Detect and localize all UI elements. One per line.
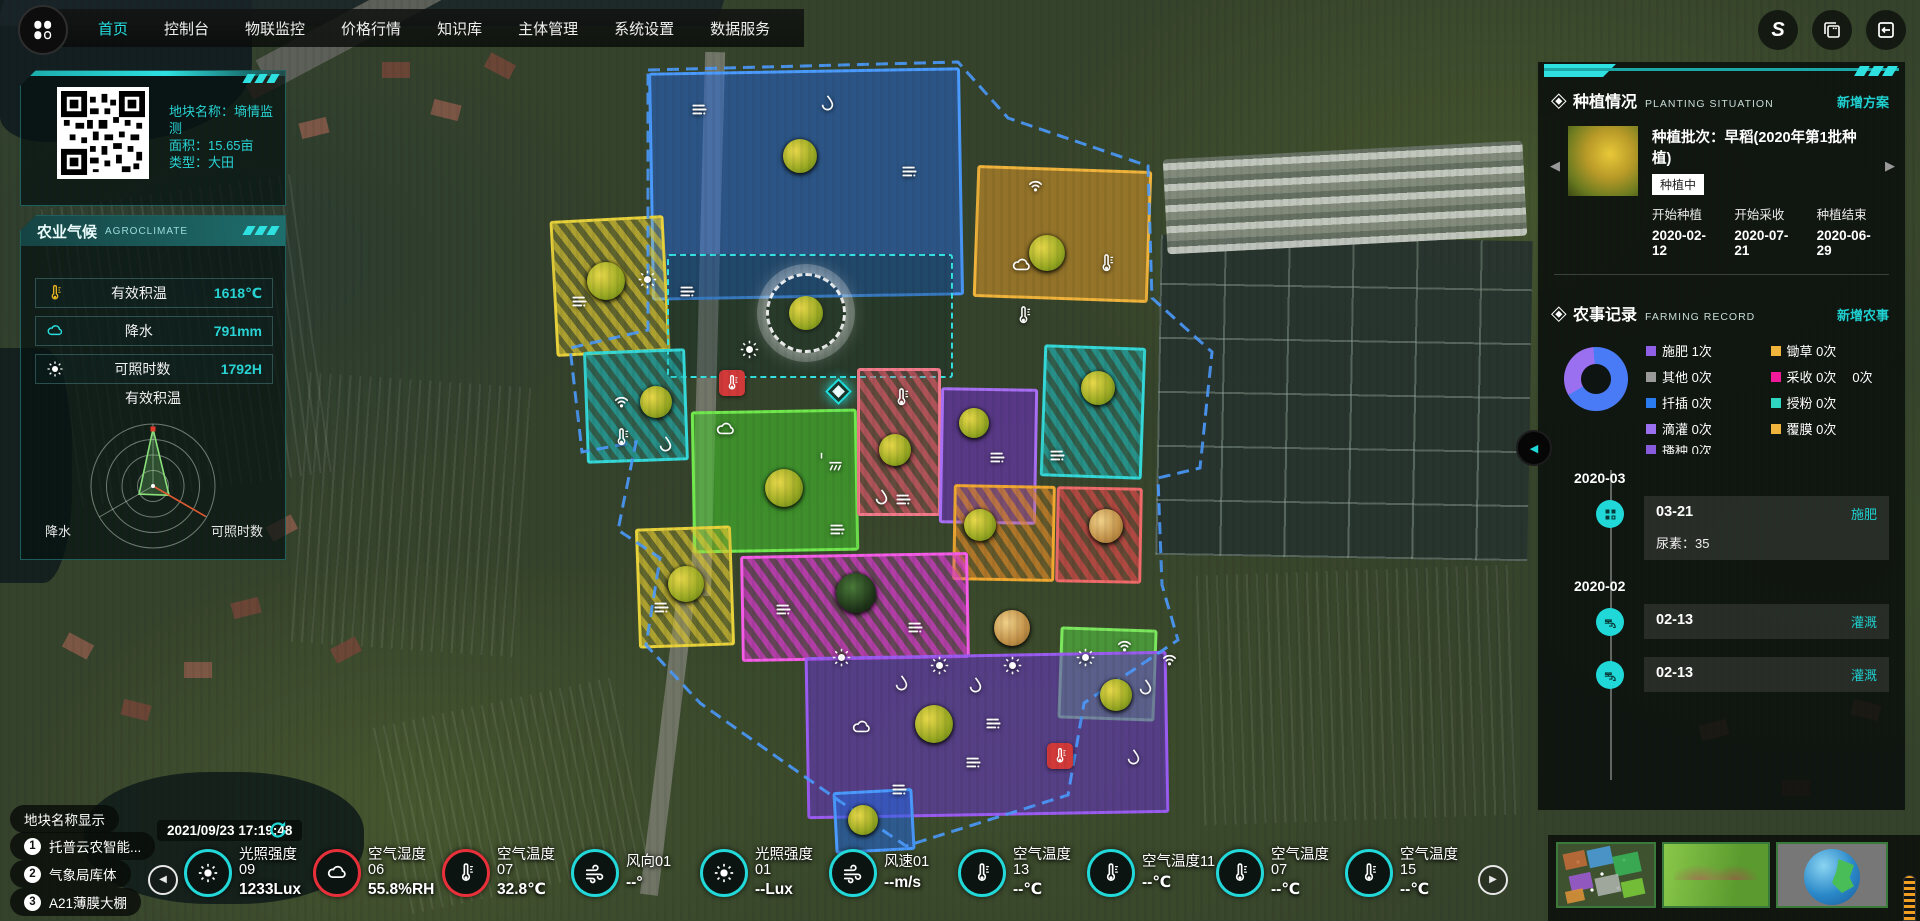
panel-decor-slashes: [245, 226, 277, 235]
map-drop-marker[interactable]: [871, 487, 892, 508]
metric-value: 791mm: [214, 323, 262, 339]
sensor-badge: [829, 849, 877, 897]
wifi-icon: [1025, 175, 1046, 196]
lines-icon: [905, 617, 926, 638]
map-lines-marker[interactable]: [689, 99, 710, 120]
logout-button[interactable]: [1866, 10, 1906, 50]
carousel-prev-icon[interactable]: ◀: [1550, 158, 1560, 174]
cloud-icon: [1011, 255, 1032, 276]
zoom-slider[interactable]: [1903, 875, 1916, 921]
map-therm-marker[interactable]: [891, 387, 912, 408]
sensor-text: 空气温度11--℃: [1142, 855, 1215, 890]
farming-donut-chart: [1564, 347, 1628, 411]
map-sun-marker[interactable]: [929, 655, 950, 676]
plot-info-text: 地块名称：墒情监测 面积：15.65亩 类型：大田: [169, 103, 285, 171]
sensor-value: --℃: [1400, 882, 1474, 898]
crop-photo-marker-rice[interactable]: [915, 705, 953, 743]
crop-photo-marker-rice[interactable]: [964, 509, 996, 541]
lines-icon: [889, 779, 910, 800]
crop-photo-marker-rice[interactable]: [1100, 679, 1132, 711]
lines-icon: [569, 291, 590, 312]
legend-label: 其他 0次: [1662, 367, 1712, 386]
planting-col-label: 开始采收: [1734, 204, 1792, 223]
therm-icon: [891, 387, 912, 408]
legend-item: 滴灌 0次: [1646, 419, 1765, 438]
legend-item: 其他 0次: [1646, 367, 1765, 386]
field-parcel-4[interactable]: [667, 254, 953, 378]
planting-subtitle: PLANTING SITUATION: [1645, 98, 1829, 110]
selected-location-marker[interactable]: [825, 378, 852, 405]
sensor-badge: [184, 849, 232, 897]
divider: [1554, 274, 1889, 275]
sensor-text: 空气温度07--℃: [1271, 848, 1345, 898]
cloud-icon: [715, 419, 736, 440]
crop-photo-marker-rice[interactable]: [783, 139, 817, 173]
map-lines-marker[interactable]: [987, 447, 1008, 468]
legend-color-swatch: [1646, 424, 1656, 434]
sensor-value: --Lux: [755, 882, 829, 898]
legend-item: 覆膜 0次: [1771, 419, 1890, 438]
timeline-card-top: 02-13灌溉: [1656, 612, 1877, 631]
map-building: [184, 662, 212, 678]
windows-button[interactable]: [1812, 10, 1852, 50]
nav-item-3[interactable]: 物联监控: [245, 18, 305, 39]
timeline-detail: 尿素：35: [1656, 533, 1877, 552]
climate-metric-row: 可照时数1792H: [35, 354, 273, 384]
toggle-plot-names-label: 地块名称显示: [24, 809, 105, 829]
field-parcel-1[interactable]: [648, 67, 964, 300]
sensor-badge: [313, 849, 361, 897]
metric-value: 1618℃: [214, 285, 262, 302]
sensor-value: --°: [626, 875, 671, 891]
main-nav: 首页控制台物联监控价格行情知识库主体管理系统设置数据服务: [40, 9, 804, 47]
sun-icon: [929, 655, 950, 676]
timeline-entry: 02-13灌溉: [1644, 657, 1889, 692]
nav-item-8[interactable]: 数据服务: [710, 18, 770, 39]
temperature-alert-marker[interactable]: [1047, 743, 1073, 769]
farming-stats: 施肥 1次锄草 0次其他 0次采收 0次0次扦插 0次授粉 0次滴灌 0次覆膜 …: [1554, 341, 1889, 454]
map-lines-marker[interactable]: [963, 752, 984, 773]
map-drop-marker[interactable]: [655, 434, 676, 455]
map-building: [120, 699, 151, 721]
globe-thumbnail[interactable]: [1776, 842, 1888, 908]
farming-title: 农事记录: [1573, 301, 1637, 325]
lines-icon: [963, 752, 984, 773]
timeline-action-tag[interactable]: 施肥: [1851, 504, 1877, 523]
planting-col: 种植结束2020-06-29: [1817, 204, 1875, 258]
sensor-badge: [1345, 849, 1393, 897]
nav-item-2[interactable]: 控制台: [164, 18, 209, 39]
switch-system-button[interactable]: S: [1758, 10, 1798, 50]
parcel-map-thumbnail[interactable]: [1556, 842, 1656, 908]
add-plan-link[interactable]: 新增方案: [1837, 92, 1889, 111]
drop-icon: [891, 673, 912, 694]
metric-value: 1792H: [221, 361, 262, 377]
crop-photo-marker-rice[interactable]: [587, 262, 625, 300]
sensor-item[interactable]: 风向01--°: [571, 848, 700, 898]
nav-item-5[interactable]: 知识库: [437, 18, 482, 39]
metric-label: 有效积温: [64, 283, 214, 303]
legend-color-swatch: [1771, 372, 1781, 382]
crop-photo-marker-rice[interactable]: [879, 434, 911, 466]
map-wifi-marker[interactable]: [611, 391, 632, 412]
lines-icon: [987, 447, 1008, 468]
nav-item-7[interactable]: 系统设置: [614, 18, 674, 39]
sensor-badge: [958, 849, 1006, 897]
legend-item: 采收 0次0次: [1771, 367, 1890, 386]
refresh-button[interactable]: [266, 818, 290, 847]
map-lines-marker[interactable]: [893, 489, 914, 510]
planting-status-badge: 种植中: [1652, 174, 1704, 195]
sensor-value: 1233Lux: [239, 882, 313, 898]
sensor-ticker-bar: ◀ 光照强度091233Lux空气湿度0655.8%RH空气温度0732.8℃风…: [148, 848, 1514, 898]
sensor-text: 空气温度0732.8℃: [497, 848, 571, 898]
drop-icon: [1123, 747, 1144, 768]
sensor-value: 55.8%RH: [368, 882, 442, 898]
sensor-item[interactable]: 空气湿度0655.8%RH: [313, 848, 442, 898]
legend-color-swatch: [1646, 398, 1656, 408]
sensor-text: 光照强度01--Lux: [755, 848, 829, 898]
field-parcel-11[interactable]: [1055, 486, 1143, 583]
legend-color-swatch: [1646, 372, 1656, 382]
therm-icon: [455, 862, 477, 884]
legend-label: 滴灌 0次: [1662, 419, 1712, 438]
map-lines-marker[interactable]: [773, 599, 794, 620]
app-logo[interactable]: [18, 5, 68, 55]
crop-photo-marker-rice[interactable]: [1029, 235, 1065, 271]
timeline-month: 2020-02: [1574, 578, 1889, 594]
drop-icon: [871, 487, 892, 508]
sensor-text: 空气温度15--℃: [1400, 848, 1474, 898]
legend-color-swatch: [1771, 424, 1781, 434]
map-sun-marker[interactable]: [1002, 655, 1023, 676]
leaf-icon: [1147, 723, 1168, 744]
map-drop-marker[interactable]: [817, 93, 838, 114]
map-sun-marker[interactable]: [739, 339, 760, 360]
map-lines-marker[interactable]: [569, 291, 590, 312]
map-therm-marker[interactable]: [1013, 305, 1034, 326]
sun-icon: [739, 339, 760, 360]
sensor-name: 空气温度15: [1400, 848, 1474, 877]
field-parcel-15[interactable]: [805, 651, 1170, 819]
map-therm-marker[interactable]: [1096, 253, 1117, 274]
globe-icon: [1804, 849, 1860, 905]
drop-icon: [965, 675, 986, 696]
crop-photo-marker-rice[interactable]: [848, 805, 878, 835]
lines-icon: [983, 713, 1004, 734]
map-cloud-marker[interactable]: [1011, 255, 1032, 276]
wifi-icon: [1159, 649, 1180, 670]
field-parcel-5[interactable]: [583, 348, 689, 463]
map-leaf-marker[interactable]: [1147, 723, 1168, 744]
sensor-item[interactable]: 光照强度01--Lux: [700, 848, 829, 898]
map-shower-marker[interactable]: [825, 457, 846, 478]
sensor-text: 风速01--m/s: [884, 855, 929, 890]
field-parcel-12[interactable]: [635, 525, 735, 648]
legend-item: 扦插 0次: [1646, 393, 1765, 412]
therm-icon: [971, 862, 993, 884]
nav-item-1[interactable]: 首页: [98, 18, 128, 39]
crop-photo-marker-corn[interactable]: [1089, 509, 1123, 543]
therm-icon: [1051, 747, 1069, 765]
sensor-item[interactable]: 光照强度091233Lux: [184, 848, 313, 898]
map-lines-marker[interactable]: [677, 281, 698, 302]
timeline-date: 03-21: [1656, 504, 1693, 523]
timeline-month: 2020-03: [1574, 470, 1889, 486]
map-lines-marker[interactable]: [827, 519, 848, 540]
field-parcel-16[interactable]: [832, 788, 915, 854]
crop-photo-marker-chive[interactable]: [836, 573, 876, 613]
sensor-name: 空气温度13: [1013, 848, 1087, 877]
map-building: [430, 99, 461, 121]
add-record-link[interactable]: 新增农事: [1837, 305, 1889, 324]
legend-color-swatch: [1646, 346, 1656, 356]
planting-col-label: 种植结束: [1817, 204, 1875, 223]
climate-metric-row: 有效积温1618℃: [35, 278, 273, 308]
smart-farm-dashboard: 首页控制台物联监控价格行情知识库主体管理系统设置数据服务 S: [0, 0, 1920, 921]
wifi-icon: [611, 391, 632, 412]
field-parcel-9[interactable]: [1040, 344, 1147, 479]
map-wifi-marker[interactable]: [1025, 175, 1046, 196]
sensor-value: --℃: [1271, 882, 1345, 898]
sensor-text: 空气温度13--℃: [1013, 848, 1087, 898]
lines-icon: [1047, 445, 1068, 466]
timeline-node[interactable]: [1596, 608, 1624, 636]
windows-icon: [1820, 18, 1844, 42]
drop-icon: [655, 434, 676, 455]
crop-photo-marker-rice[interactable]: [640, 386, 672, 418]
legend-label: 施肥 1次: [1662, 341, 1712, 360]
farming-section-header: 农事记录 FARMING RECORD 新增农事: [1554, 301, 1889, 325]
diamond-icon: [1551, 93, 1567, 109]
planting-title: 种植情况: [1573, 88, 1637, 112]
faucet-icon: [1602, 667, 1619, 684]
field-parcel-13[interactable]: [740, 552, 970, 662]
map-sprout-marker[interactable]: [811, 441, 832, 462]
map-sun-marker[interactable]: [637, 269, 658, 290]
sensor-name: 空气温度11: [1142, 855, 1215, 870]
therm-icon: [1013, 305, 1034, 326]
wind-icon: [842, 862, 864, 884]
switch-icon: S: [1771, 19, 1784, 42]
sensor-text: 光照强度091233Lux: [239, 848, 313, 898]
map-lines-marker[interactable]: [651, 597, 672, 618]
therm-icon: [46, 284, 64, 302]
sensor-scroll-right-icon[interactable]: ▶: [1478, 865, 1508, 895]
radar-axis-sunhours-label: 可照时数: [211, 521, 263, 540]
plot-qr-code[interactable]: [57, 87, 149, 179]
therm-icon: [1358, 862, 1380, 884]
map-building: [484, 52, 516, 79]
sensor-value: --m/s: [884, 875, 929, 891]
map-sun-marker[interactable]: [831, 647, 852, 668]
map-drop-marker[interactable]: [891, 673, 912, 694]
sprout-icon: [811, 441, 832, 462]
radar-axis-precip-label: 降水: [45, 521, 71, 540]
sun-icon: [637, 269, 658, 290]
timeline-card[interactable]: 02-13灌溉: [1644, 657, 1889, 692]
plot-list-number: 2: [24, 866, 41, 883]
sensor-badge: [1087, 849, 1135, 897]
sensor-value: 32.8℃: [497, 882, 571, 898]
planting-col-date: 2020-07-21: [1734, 228, 1792, 258]
therm-icon: [1229, 862, 1251, 884]
plot-type: 类型：大田: [169, 154, 285, 171]
sun-icon: [1002, 655, 1023, 676]
crop-photo-marker-rice[interactable]: [668, 566, 704, 602]
legend-item: 授粉 0次: [1771, 393, 1890, 412]
logout-icon: [1874, 18, 1898, 42]
field-parcel-6[interactable]: [691, 409, 859, 554]
map-drop-marker[interactable]: [965, 675, 986, 696]
therm-icon: [611, 427, 632, 448]
field-parcel-3[interactable]: [550, 215, 671, 357]
planting-batch: 种植批次：早稻(2020年第1批种植): [1652, 126, 1875, 168]
sensor-scroll-left-icon[interactable]: ◀: [148, 865, 178, 895]
map-field-texture: [291, 372, 539, 657]
cloud-icon: [326, 862, 348, 884]
plot-list-number: 1: [24, 838, 41, 855]
map-lines-marker[interactable]: [1047, 445, 1068, 466]
map-lines-marker[interactable]: [889, 779, 910, 800]
timeline-card-top: 02-13灌溉: [1656, 665, 1877, 684]
weather-station-marker[interactable]: [766, 273, 846, 353]
timeline-action-tag[interactable]: 灌溉: [1851, 665, 1877, 684]
plot-list-label: 气象局库体: [49, 864, 117, 884]
sensor-name: 空气温度07: [497, 848, 571, 877]
toggle-plot-names-button[interactable]: 地块名称显示: [10, 805, 119, 833]
planting-col: 开始采收2020-07-21: [1734, 204, 1792, 258]
map-wifi-marker[interactable]: [1114, 635, 1135, 656]
sensor-item[interactable]: 空气温度13--℃: [958, 848, 1087, 898]
timeline-entry: 02-13灌溉: [1644, 604, 1889, 639]
station-crop-photo: [789, 296, 823, 330]
sensor-badge: [571, 849, 619, 897]
crop-photo-marker-rice[interactable]: [959, 408, 989, 438]
panel-decor-slashes: [245, 74, 277, 83]
lines-icon: [827, 519, 848, 540]
crop-photo-marker-rice[interactable]: [1081, 371, 1115, 405]
plot-list-item-3[interactable]: 3A21薄膜大棚: [10, 888, 141, 916]
drop-icon: [1135, 677, 1156, 698]
timeline-card[interactable]: 02-13灌溉: [1644, 604, 1889, 639]
sun-icon: [713, 862, 735, 884]
sensor-badge: [700, 849, 748, 897]
map-greenhouses: [1163, 141, 1527, 255]
lines-icon: [899, 161, 920, 182]
top-right-buttons: S: [1758, 10, 1906, 50]
map-cloud-marker[interactable]: [715, 419, 736, 440]
timeline-node[interactable]: [1596, 661, 1624, 689]
planting-col-label: 开始种植: [1652, 204, 1710, 223]
drop-icon: [817, 93, 838, 114]
field-parcel-8[interactable]: [939, 387, 1038, 525]
farming-subtitle: FARMING RECORD: [1645, 311, 1829, 323]
climate-metric-row: 降水791mm: [35, 316, 273, 346]
plot-list-label: A21薄膜大棚: [49, 892, 127, 912]
basemap-switcher: [1548, 835, 1920, 921]
map-drop-marker[interactable]: [1135, 677, 1156, 698]
nav-item-4[interactable]: 价格行情: [341, 18, 401, 39]
map-wifi-marker[interactable]: [1159, 649, 1180, 670]
map-drop-marker[interactable]: [1123, 747, 1144, 768]
nav-item-6[interactable]: 主体管理: [518, 18, 578, 39]
timeline-node[interactable]: [1596, 500, 1624, 528]
crop-photo-marker-rice[interactable]: [765, 469, 803, 507]
map-lines-marker[interactable]: [905, 617, 926, 638]
sensor-item[interactable]: 空气温度11--℃: [1087, 848, 1216, 898]
crop-photo: [1568, 126, 1638, 196]
therm-icon: [723, 374, 741, 392]
planting-carousel: ◀ 种植批次：早稻(2020年第1批种植) 种植中 开始种植2020-02-12…: [1554, 126, 1889, 258]
wind-icon: [584, 862, 606, 884]
therm-icon: [1100, 862, 1122, 884]
map-lines-marker[interactable]: [899, 161, 920, 182]
radar-axis-top-label: 有效积温: [21, 388, 285, 408]
crop-photo-marker-corn[interactable]: [994, 610, 1030, 646]
legend-label: 采收 0次: [1787, 367, 1837, 386]
grid-icon: [1602, 506, 1619, 523]
panel-decor: [1538, 62, 1905, 80]
map-building: [62, 632, 94, 659]
map-field-texture: [1196, 564, 1525, 825]
field-parcel-14[interactable]: [1057, 626, 1157, 721]
plot-list-label: 托普云农智能...: [49, 836, 141, 856]
therm-icon: [1096, 253, 1117, 274]
sensor-text: 风向01--°: [626, 855, 671, 890]
sensor-item[interactable]: 空气温度0732.8℃: [442, 848, 571, 898]
plot-list-number: 3: [24, 894, 41, 911]
planting-info: 种植批次：早稻(2020年第1批种植) 种植中 开始种植2020-02-12开始…: [1652, 126, 1875, 258]
lines-icon: [677, 281, 698, 302]
legend-label: 播种 0次: [1662, 445, 1712, 454]
metric-label: 可照时数: [64, 359, 221, 379]
map-cloud-marker[interactable]: [851, 717, 872, 738]
timeline-card[interactable]: 03-21施肥尿素：35: [1644, 496, 1889, 560]
plot-list-item-1[interactable]: 1托普云农智能...: [10, 832, 155, 860]
plot-list-item-2[interactable]: 2气象局库体: [10, 860, 131, 888]
map-lines-marker[interactable]: [983, 713, 1004, 734]
map-therm-marker[interactable]: [611, 427, 632, 448]
field-parcel-10[interactable]: [952, 484, 1056, 582]
carousel-next-icon[interactable]: ▶: [1885, 158, 1895, 174]
terrain-thumbnail[interactable]: [1662, 842, 1770, 908]
sensor-value: --℃: [1013, 882, 1087, 898]
plot-area: 面积：15.65亩: [169, 137, 285, 154]
sun-icon: [831, 647, 852, 668]
sensor-name: 空气温度07: [1271, 848, 1345, 877]
field-parcel-2[interactable]: [973, 165, 1153, 303]
sensor-item[interactable]: 空气温度15--℃: [1345, 848, 1474, 898]
timeline-entry: 03-21施肥尿素：35: [1644, 496, 1889, 560]
sun-icon: [1075, 647, 1096, 668]
sensor-name: 光照强度01: [755, 848, 829, 877]
cloud-icon: [851, 717, 872, 738]
sensor-name: 光照强度09: [239, 848, 313, 877]
planting-col-date: 2020-06-29: [1817, 228, 1875, 258]
map-sun-marker[interactable]: [1075, 647, 1096, 668]
panel-collapse-button[interactable]: ◀: [1516, 430, 1552, 466]
refresh-icon: [266, 818, 290, 842]
temperature-alert-marker[interactable]: [719, 370, 745, 396]
sensor-item[interactable]: 空气温度07--℃: [1216, 848, 1345, 898]
map-building: [382, 62, 410, 78]
sensor-item[interactable]: 风速01--m/s: [829, 848, 958, 898]
logo-dots-icon: [30, 17, 56, 43]
timeline-action-tag[interactable]: 灌溉: [1851, 612, 1877, 631]
field-parcel-7[interactable]: [857, 368, 941, 516]
plot-name: 地块名称：墒情监测: [169, 103, 285, 137]
